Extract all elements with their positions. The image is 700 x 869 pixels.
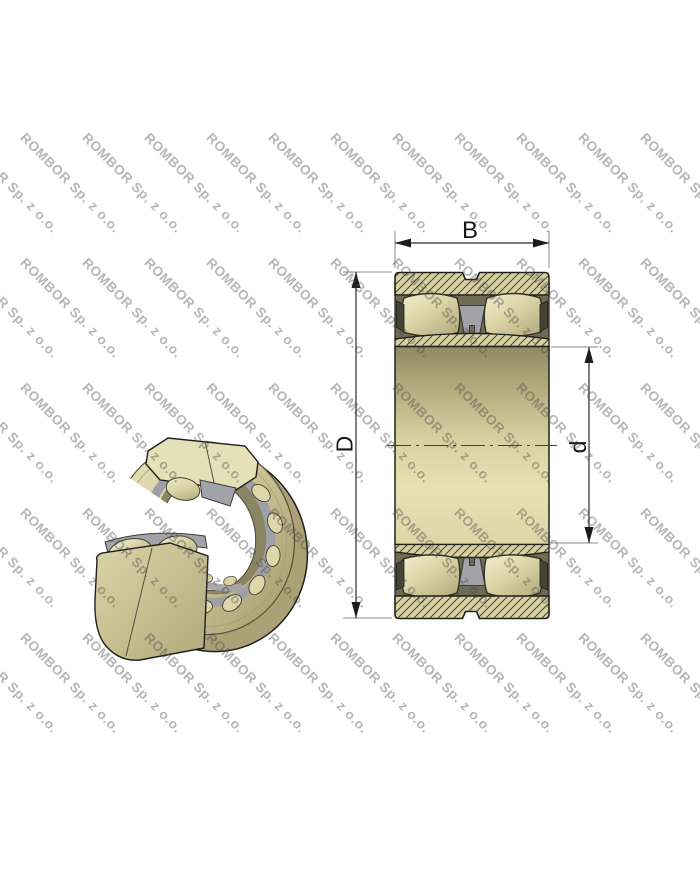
dimension-d-outer: D — [332, 272, 393, 618]
arrow-left — [395, 239, 411, 248]
outer-ring-top — [395, 273, 549, 296]
dimension-label-outer-d: D — [332, 436, 358, 453]
roller-bottom-left — [401, 555, 460, 598]
roller-top-right — [484, 294, 543, 337]
arrow-down — [585, 527, 594, 543]
arrow-up — [352, 272, 361, 288]
roller-top-left — [401, 294, 460, 337]
dimension-label-bore-d: d — [565, 441, 591, 454]
dimension-b-width: B — [395, 217, 549, 268]
dimension-d-bore: d — [551, 347, 598, 543]
technical-drawing-svg: B D d — [0, 0, 700, 869]
roller-bottom-right — [484, 555, 543, 598]
bearing-3d-view — [0, 390, 330, 673]
dimension-label-b: B — [462, 217, 478, 244]
arrow-up — [585, 347, 594, 363]
bearing-cross-section — [387, 273, 557, 619]
outer-ring-bottom — [395, 596, 549, 619]
arrow-down — [352, 602, 361, 618]
bearing-drawing-page: B D d ROMBOR Sp. z o.o.ROMBOR Sp. z o.o.… — [0, 0, 700, 869]
arrow-right — [533, 239, 549, 248]
bearing-3d-cut-block-lower — [95, 543, 208, 660]
